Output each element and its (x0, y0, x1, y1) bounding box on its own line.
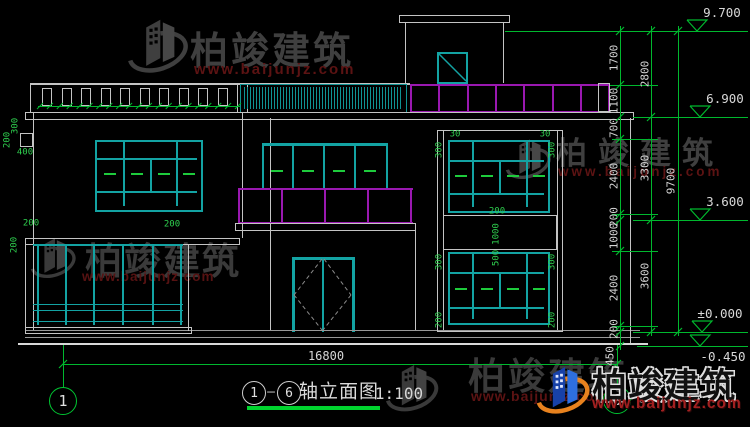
hatch-line (313, 87, 314, 109)
hatch-line (280, 87, 281, 109)
dim-ext-line (633, 332, 748, 333)
porch-left-edge (25, 244, 26, 332)
hatch-line (253, 87, 254, 109)
hatch-line (304, 87, 305, 109)
sash-mark (507, 175, 519, 177)
total-width-label: 16800 (308, 350, 344, 362)
hatch-line (349, 87, 350, 109)
porch-rail (33, 310, 183, 311)
hatch-line (256, 87, 257, 109)
hatch-line (277, 87, 278, 109)
parapet-baluster (179, 88, 189, 106)
dim-ext-line (505, 31, 748, 32)
hatch-line (262, 87, 263, 109)
hatch-line (283, 87, 284, 109)
sash-mark (183, 173, 195, 175)
window-mullion (472, 254, 474, 319)
hatch-line (307, 87, 308, 109)
hatch-line (337, 87, 338, 109)
roof-slab (25, 112, 634, 120)
roof-railing (410, 84, 610, 113)
hatch-line (271, 87, 272, 109)
parapet-baluster (198, 88, 208, 106)
porch-slab (25, 327, 192, 334)
baijun-logo-icon (127, 10, 191, 82)
watermark-bottom-right: 柏竣建筑 www.baijunjz.com (536, 354, 750, 427)
dim-label: 200 (609, 319, 620, 339)
dim-label: 200 (164, 221, 180, 230)
hatch-line (268, 87, 269, 109)
window-mullion (450, 272, 544, 274)
parapet-dim-line (38, 106, 240, 107)
dim-label: 300 (549, 254, 558, 270)
hatch-line (382, 87, 383, 109)
dim-ext-line (612, 251, 658, 252)
hatch-line (286, 87, 287, 109)
railing-post (438, 84, 440, 113)
hatch-line (325, 87, 326, 109)
sash-mark (533, 175, 545, 177)
porch-column (152, 244, 154, 325)
dim-label: 200 (549, 312, 558, 328)
dim-label: 500 (493, 250, 502, 266)
parapet-baluster (159, 88, 169, 106)
hatch-line (373, 87, 374, 109)
sash-mark (131, 173, 143, 175)
porch-column (93, 244, 95, 325)
porch-column (65, 244, 67, 325)
porch-column (122, 244, 124, 325)
dim-label: 30 (450, 131, 461, 140)
window-mullion (176, 142, 178, 206)
dim-label: 700 (609, 118, 620, 138)
hatch-line (376, 87, 377, 109)
dim-label: 200 (11, 237, 20, 253)
sash-mark (104, 173, 116, 175)
dim-label: 200 (23, 220, 39, 229)
slider-frame (262, 143, 264, 188)
slider-frame (323, 143, 325, 188)
porch-right-edge (188, 244, 189, 331)
hatch-line (400, 87, 401, 109)
slider-top-rail (262, 143, 388, 146)
title-axis-end-bubble: 6 (277, 381, 301, 405)
railing-post (238, 188, 240, 224)
elevation-value: 3.600 (706, 196, 744, 209)
hatch-line (292, 87, 293, 109)
dim-label: 300 (436, 254, 445, 270)
window-mullion (450, 307, 544, 309)
title-dash: — (267, 386, 275, 399)
elevation-triangle-icon (690, 335, 710, 346)
dim-chain-line (678, 26, 679, 336)
railing-post (367, 188, 369, 224)
sash-mark (333, 170, 345, 172)
sash-mark (271, 170, 283, 172)
right-wall (630, 118, 631, 343)
hatch-line (289, 87, 290, 109)
hatch-line (388, 87, 389, 109)
parapet-balusters (42, 88, 242, 105)
sash-mark (364, 170, 376, 172)
slider-frame (292, 143, 294, 188)
hatch-line (316, 87, 317, 109)
dim-label: 2400 (609, 163, 620, 190)
hatch-line (355, 87, 356, 109)
railing-post (324, 188, 326, 224)
window-mullion (499, 160, 501, 193)
hatch-line (343, 87, 344, 109)
elevation-triangle-icon (690, 209, 710, 220)
hatch-line (301, 87, 302, 109)
width-dim-line (63, 364, 617, 365)
elevation-triangle-icon (692, 321, 712, 332)
stair-tower-wall (503, 22, 504, 83)
elevation-value: 9.700 (703, 7, 741, 20)
dim-ext-line (637, 346, 748, 347)
porch-rail (33, 244, 183, 246)
hatch-line (334, 87, 335, 109)
parapet-baluster (120, 88, 130, 106)
drawing-scale: 1:100 (375, 386, 423, 402)
stair-tower-cap (399, 15, 510, 23)
porch-rail (33, 321, 183, 322)
dim-label: 300 (436, 142, 445, 158)
railing-post (467, 84, 469, 113)
door-center-stile (322, 260, 324, 332)
axis-ext-line (63, 345, 64, 388)
axis-bubble-left: 1 (49, 387, 77, 415)
sash-mark (158, 173, 170, 175)
railing-post (552, 84, 554, 113)
hatch-line (379, 87, 380, 109)
wall-line (415, 230, 416, 331)
porch-frame (25, 244, 190, 332)
window-mullion (97, 158, 197, 160)
railing-post (281, 188, 283, 224)
dim-label: 3600 (640, 263, 651, 290)
parapet-baluster (218, 88, 228, 106)
dim-label: 200 (489, 208, 505, 217)
hatch-line (385, 87, 386, 109)
window-mullion (97, 191, 197, 193)
slider-frame (354, 143, 356, 188)
slider-frame (386, 143, 388, 188)
parapet-baluster (81, 88, 91, 106)
hatch-line (361, 87, 362, 109)
railing-post (580, 84, 582, 113)
window-mullion (450, 193, 544, 195)
parapet-baluster (42, 88, 52, 106)
sash-mark (302, 170, 314, 172)
parapet-baluster (101, 88, 111, 106)
hatch-line (352, 87, 353, 109)
window-mullion (526, 142, 528, 207)
hatch-line (328, 87, 329, 109)
total-height-label: 9700 (666, 168, 677, 195)
railing-post (495, 84, 497, 113)
step-line (25, 337, 640, 338)
window-mullion (499, 272, 501, 307)
elevation-value: ±0.000 (697, 308, 742, 321)
hatch-line (346, 87, 347, 109)
dim-ext-line (612, 139, 658, 140)
entry-door (292, 257, 355, 332)
hatch-line (295, 87, 296, 109)
window-mullion (123, 142, 125, 206)
hatch-line (367, 87, 368, 109)
dim-label: 200 (436, 312, 445, 328)
title-axis-start-bubble: 1 (242, 381, 266, 405)
hatch-line (247, 87, 248, 109)
hatch-line (244, 87, 245, 109)
hatch-railing (240, 84, 407, 113)
railing-post (523, 84, 525, 113)
stair-tower-window (437, 52, 468, 84)
hatch-line (250, 87, 251, 109)
window-mullion (526, 254, 528, 319)
porch-column (37, 244, 39, 325)
drawing-title: 轴立面图 (299, 383, 379, 402)
hatch-line (358, 87, 359, 109)
stair-tower-wall (405, 22, 406, 83)
balcony-slab (235, 223, 416, 231)
baijun-logo-icon (536, 356, 592, 424)
dim-label: 300 (12, 118, 21, 134)
hatch-line (397, 87, 398, 109)
sliding-door (262, 143, 388, 188)
hatch-line (310, 87, 311, 109)
window-mullion (472, 142, 474, 207)
ground-line (18, 343, 648, 345)
dim-label: 30 (540, 131, 551, 140)
railing-post (410, 84, 412, 113)
parapet-left-edge (30, 83, 31, 112)
beam-end (20, 133, 33, 147)
axis-number: 1 (58, 392, 67, 410)
hatch-line (364, 87, 365, 109)
balcony-railing (238, 188, 413, 224)
porch-column (180, 244, 182, 325)
hatch-line (298, 87, 299, 109)
bay-upper-window (448, 140, 550, 213)
elevation-triangle-icon (690, 106, 710, 117)
watermark-top-left: 柏竣建筑 www.baijunjz.com (125, 8, 395, 88)
hatch-line (331, 87, 332, 109)
dim-label: 1700 (609, 45, 620, 72)
sash-mark (455, 288, 467, 290)
hatch-line (370, 87, 371, 109)
axis-number: 6 (285, 386, 293, 401)
hatch-line (259, 87, 260, 109)
hatch-line (322, 87, 323, 109)
title-underline (247, 406, 380, 410)
dim-ext-line (633, 117, 748, 118)
hatch-line (340, 87, 341, 109)
axis-number: 1 (250, 386, 258, 401)
hatch-line (394, 87, 395, 109)
sash-mark (455, 175, 467, 177)
dim-label: 300 (549, 142, 558, 158)
porch-rail (33, 304, 183, 305)
sash-mark (507, 288, 519, 290)
hatch-line (319, 87, 320, 109)
dim-label: 400 (17, 149, 33, 158)
sash-mark (481, 175, 493, 177)
watermark-url: www.baijunjz.com (592, 395, 742, 413)
railing-post (410, 188, 412, 224)
dim-label: 1100 (609, 88, 620, 115)
sash-mark (481, 288, 493, 290)
dim-label: 1000 (609, 223, 620, 250)
left-window (95, 140, 203, 212)
dim-label: 2800 (640, 61, 651, 88)
dim-label: 1000 (493, 223, 502, 245)
dim-label: 2400 (609, 275, 620, 302)
parapet-baluster (62, 88, 72, 106)
parapet-baluster (140, 88, 150, 106)
bay-column-line (557, 130, 558, 330)
hatch-line (274, 87, 275, 109)
window-mullion (150, 158, 152, 191)
dim-label: 200 (4, 132, 13, 148)
dim-label: 3300 (640, 155, 651, 182)
elevation-triangle-icon (687, 20, 707, 31)
watermark-url: www.baijunjz.com (194, 61, 355, 78)
hatch-line (391, 87, 392, 109)
sash-mark (533, 288, 545, 290)
hatch-line (265, 87, 266, 109)
elevation-value: 6.900 (706, 93, 744, 106)
dim-ext-line (633, 220, 748, 221)
window-mullion (450, 160, 544, 162)
elevation-drawing-canvas: 柏竣建筑 www.baijunjz.com 柏竣建筑 www.baijunjz.… (0, 0, 750, 427)
